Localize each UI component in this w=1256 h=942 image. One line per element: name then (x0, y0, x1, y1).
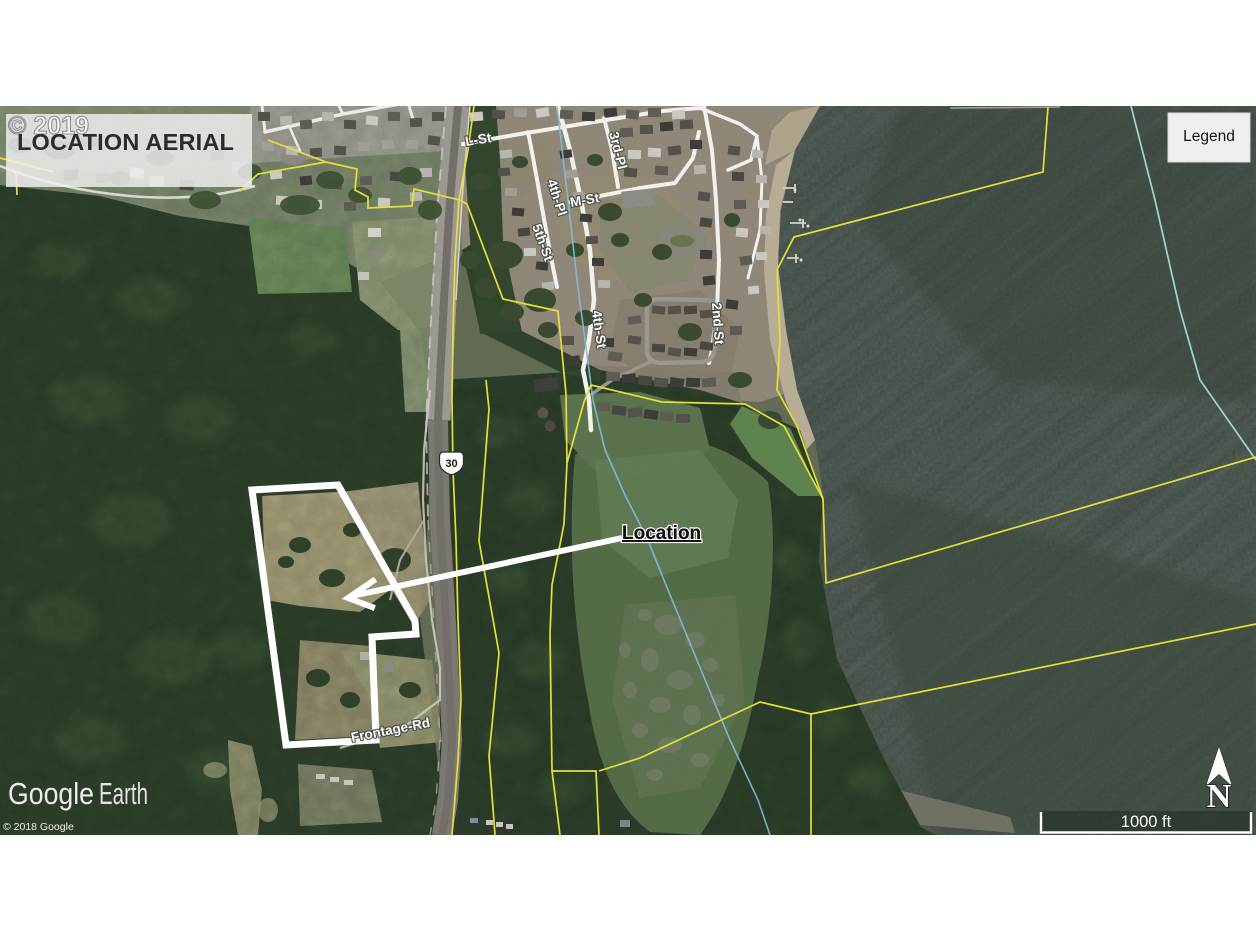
svg-text:1000 ft: 1000 ft (1121, 813, 1172, 831)
svg-text:30: 30 (445, 458, 457, 470)
svg-text:Legend: Legend (1183, 128, 1235, 145)
svg-text:© 2018 Google: © 2018 Google (3, 821, 74, 833)
svg-text:Location: Location (622, 523, 701, 544)
svg-text:Earth: Earth (99, 776, 148, 811)
svg-text:LOCATION AERIAL: LOCATION AERIAL (17, 129, 234, 155)
svg-text:Google: Google (8, 776, 94, 811)
svg-text:2nd-St: 2nd-St (709, 302, 727, 345)
svg-text:N: N (1207, 778, 1232, 815)
